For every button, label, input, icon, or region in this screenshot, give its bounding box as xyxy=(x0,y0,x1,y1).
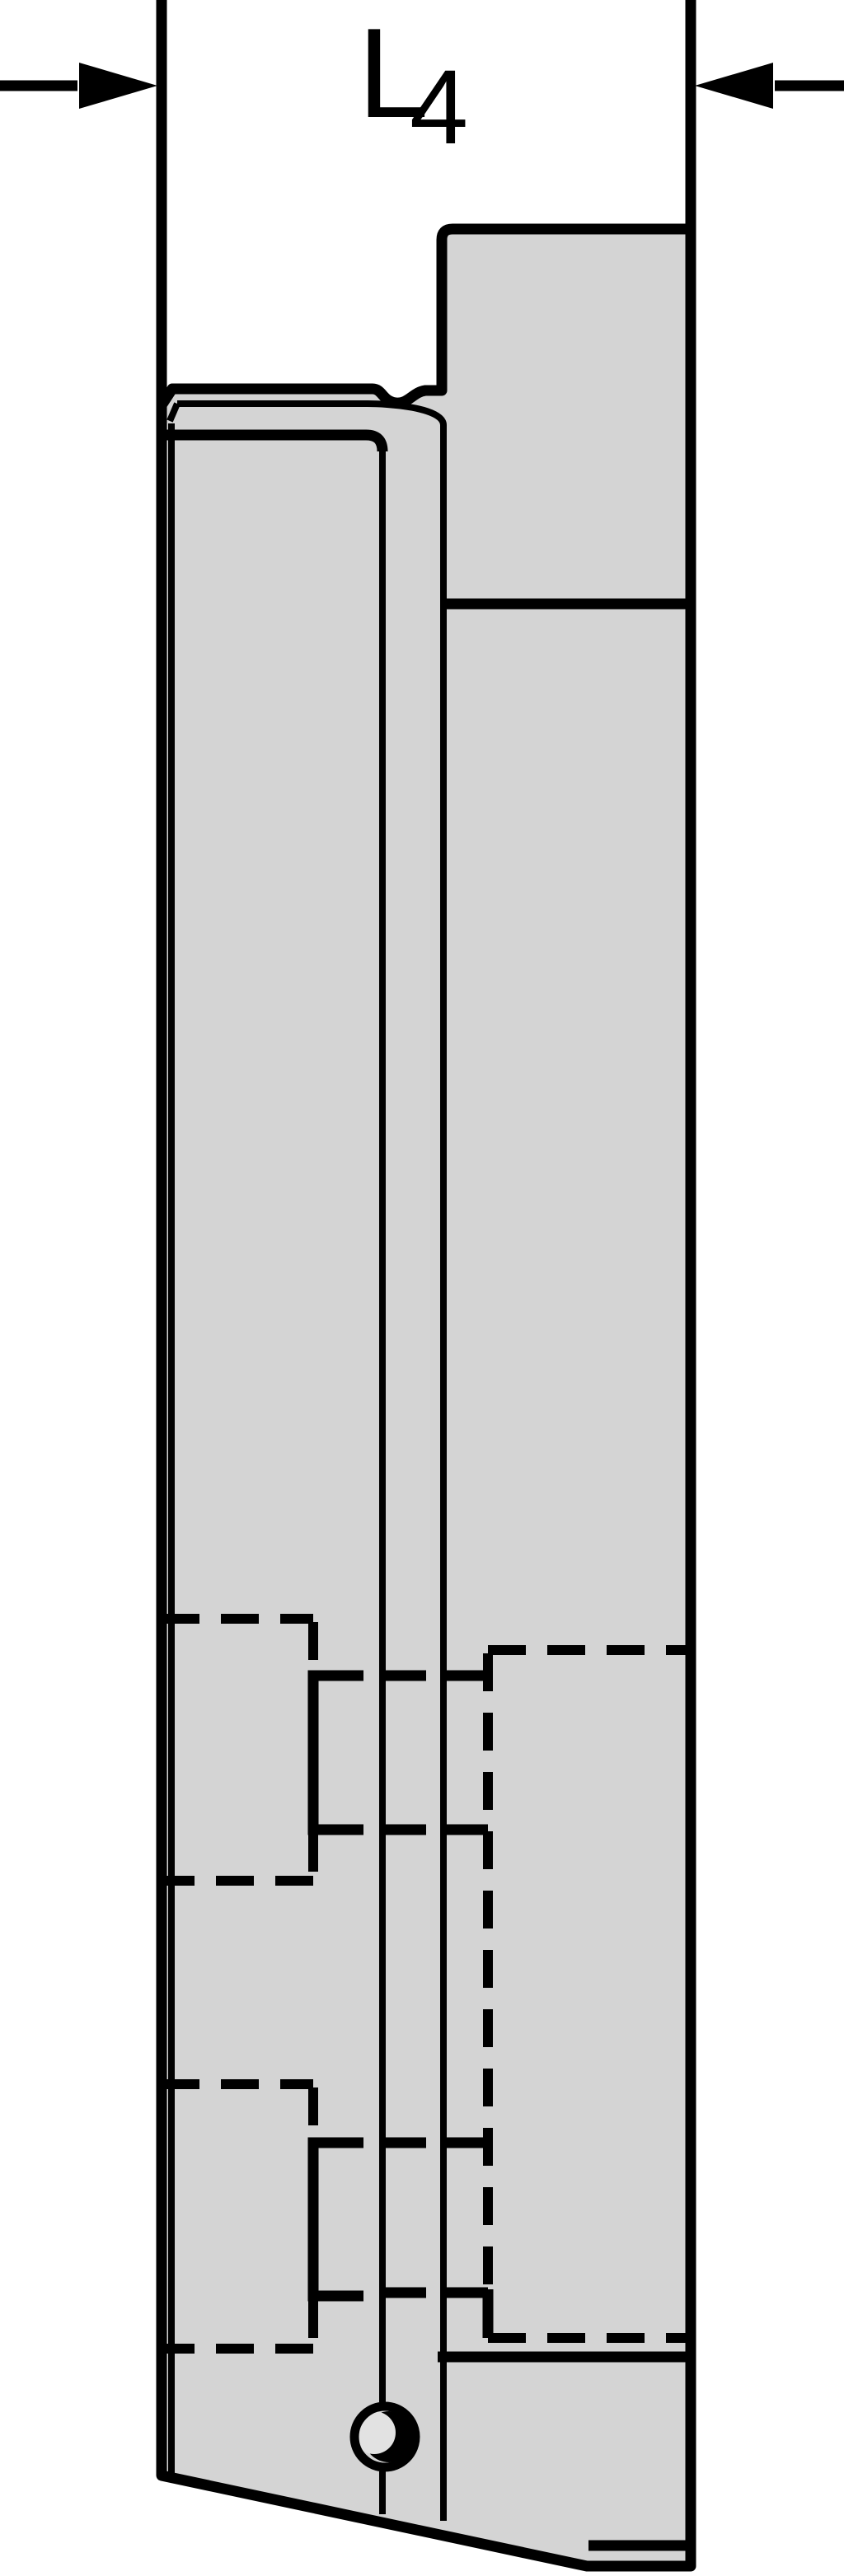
technical-drawing-canvas: L 4 xyxy=(0,0,844,2576)
tool-blade-side-view-drawing: L 4 xyxy=(0,0,844,2576)
mounting-hole xyxy=(353,2406,415,2467)
blade-body-outline xyxy=(162,229,691,2566)
dimension-label-l4: L 4 xyxy=(358,2,468,166)
arrow-head xyxy=(79,63,157,109)
dimension-arrow-left-icon xyxy=(0,63,157,109)
arrow-head xyxy=(695,63,773,109)
dimension-l4: L 4 xyxy=(0,0,844,405)
dimension-arrow-right-icon xyxy=(695,63,844,109)
